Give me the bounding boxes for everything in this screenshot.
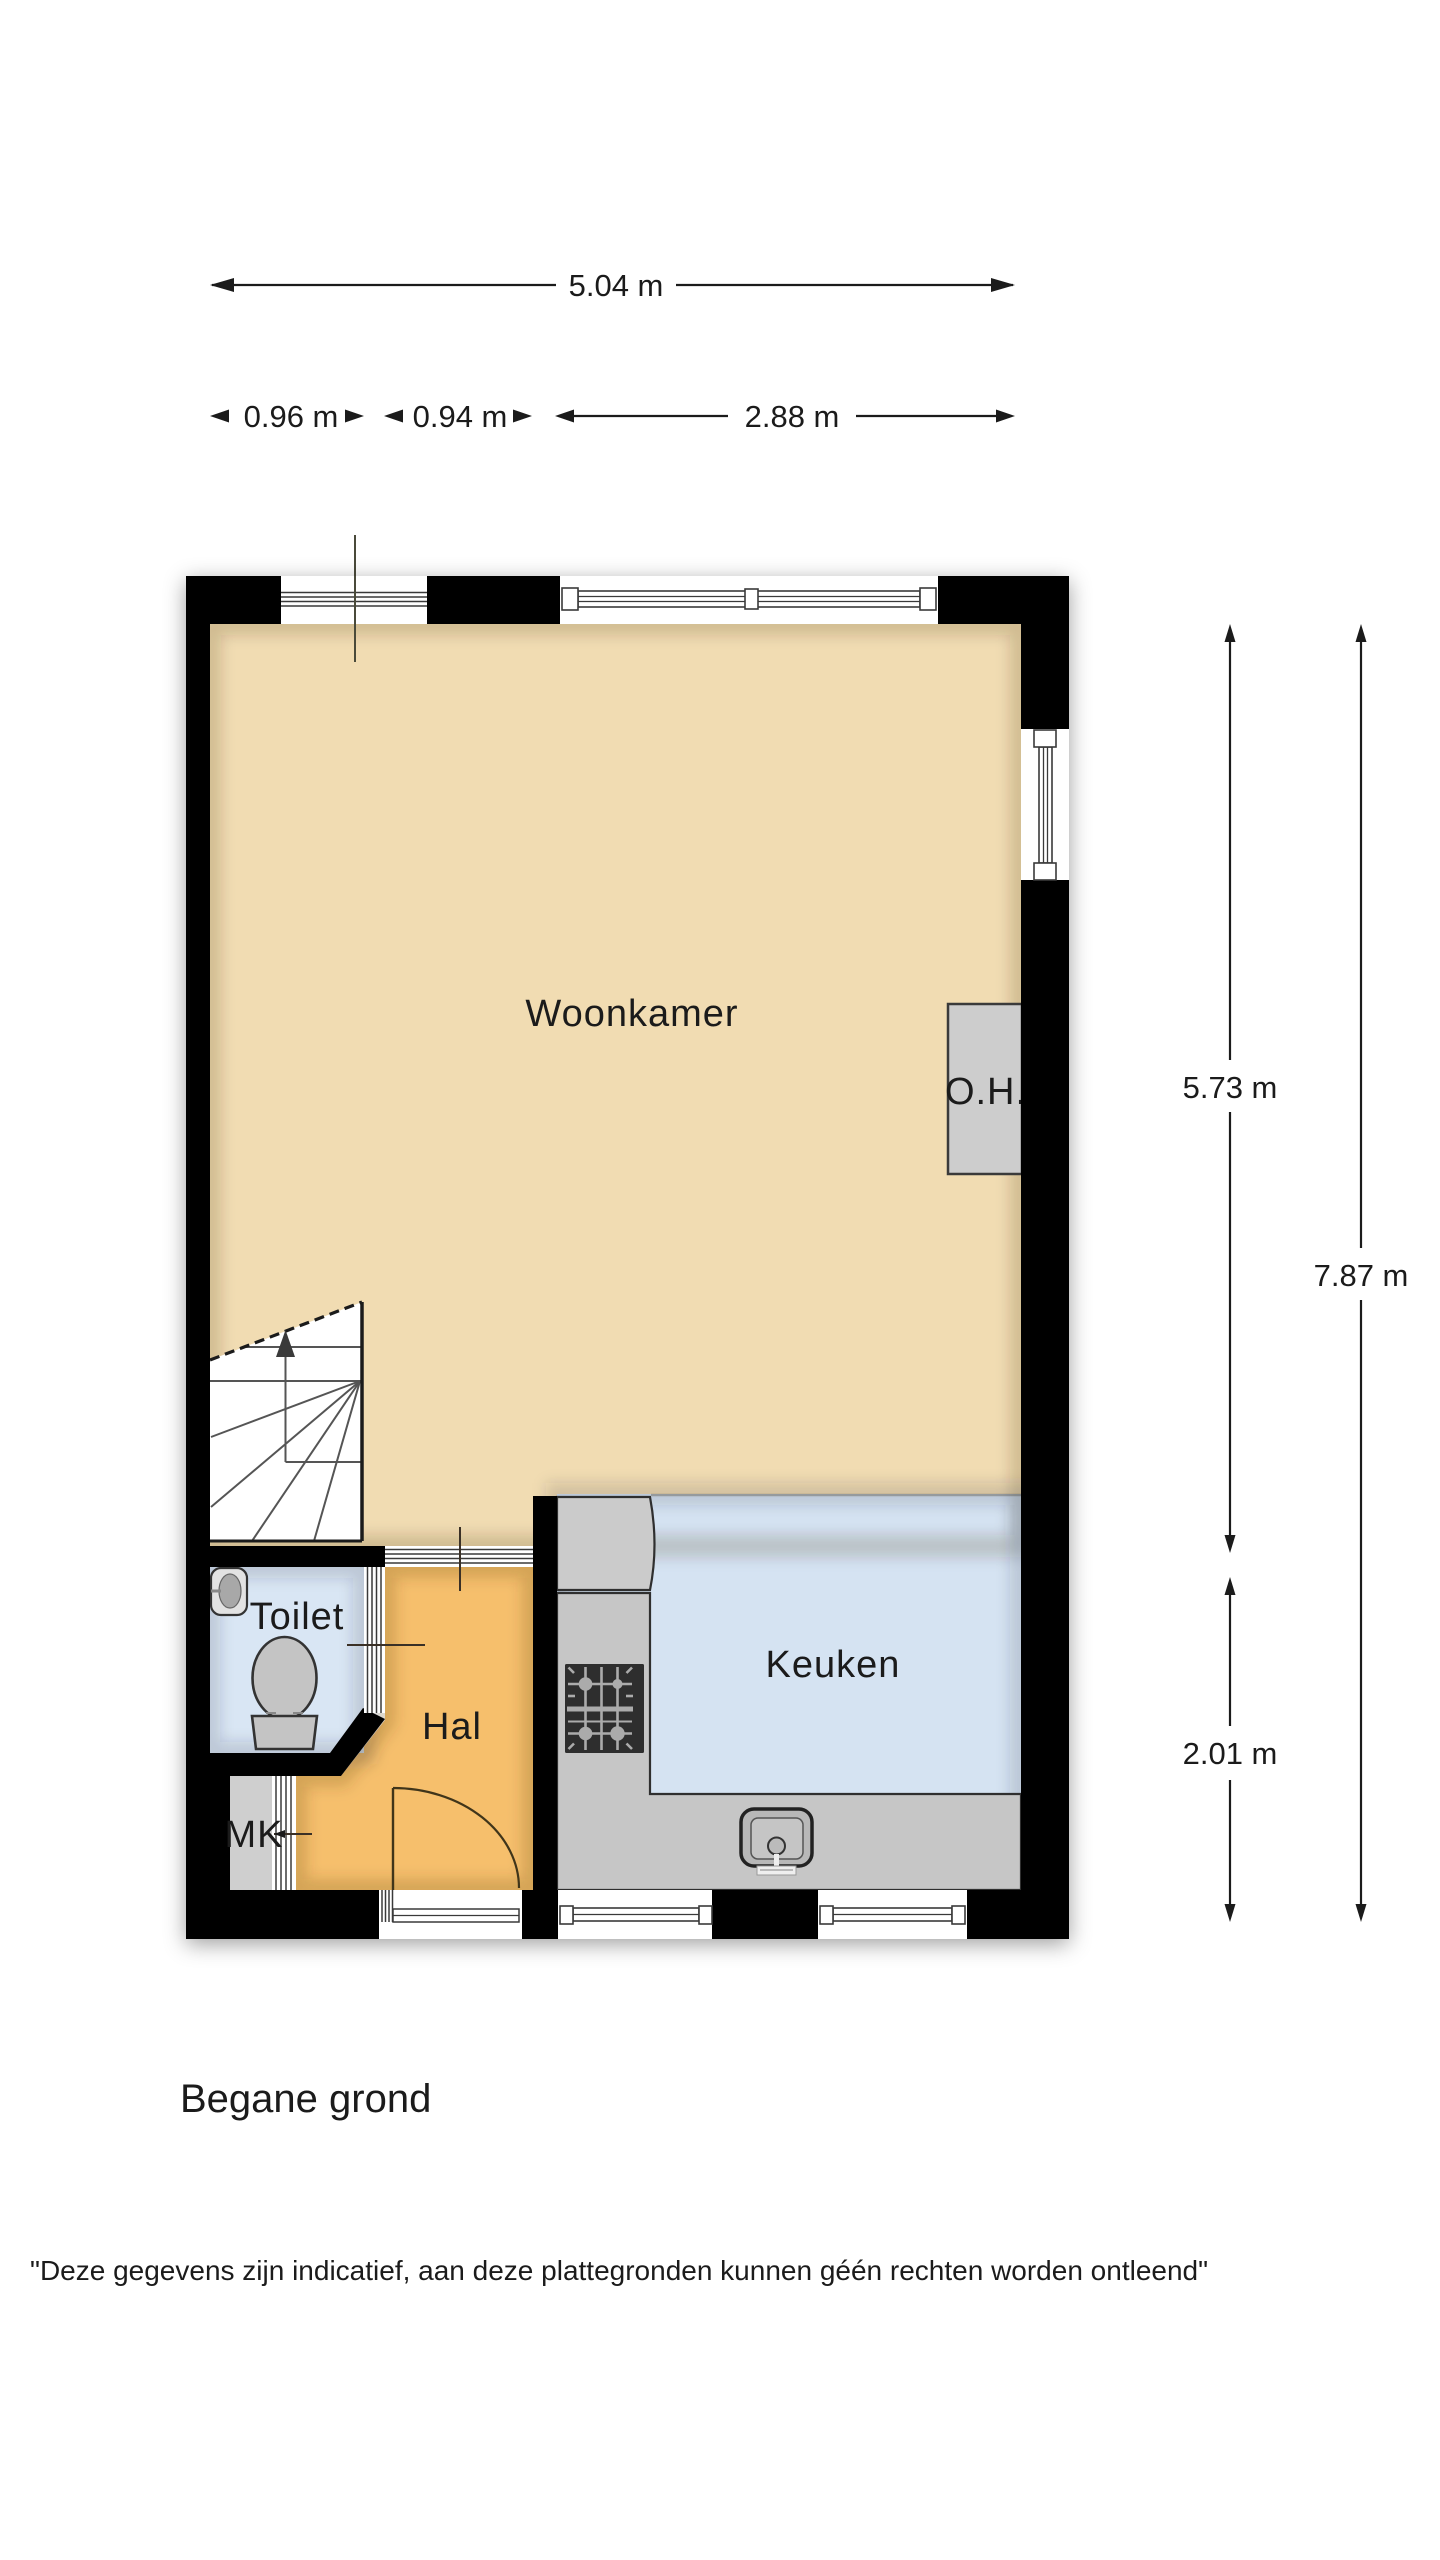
svg-text:0.94 m: 0.94 m bbox=[413, 399, 508, 434]
svg-text:"Deze gegevens zijn indicatief: "Deze gegevens zijn indicatief, aan deze… bbox=[30, 2255, 1208, 2286]
svg-text:2.01 m: 2.01 m bbox=[1183, 1736, 1278, 1771]
svg-text:Keuken: Keuken bbox=[766, 1644, 901, 1686]
svg-text:5.04 m: 5.04 m bbox=[569, 268, 664, 303]
svg-text:Woonkamer: Woonkamer bbox=[525, 993, 738, 1035]
svg-text:0.96 m: 0.96 m bbox=[244, 399, 339, 434]
svg-text:7.87 m: 7.87 m bbox=[1314, 1258, 1409, 1293]
svg-text:Begane grond: Begane grond bbox=[180, 2077, 431, 2121]
svg-text:5.73 m: 5.73 m bbox=[1183, 1070, 1278, 1105]
svg-text:Hal: Hal bbox=[422, 1706, 482, 1748]
svg-text:O.H.: O.H. bbox=[945, 1071, 1027, 1113]
svg-text:2.88 m: 2.88 m bbox=[745, 399, 840, 434]
svg-text:Toilet: Toilet bbox=[250, 1596, 345, 1638]
